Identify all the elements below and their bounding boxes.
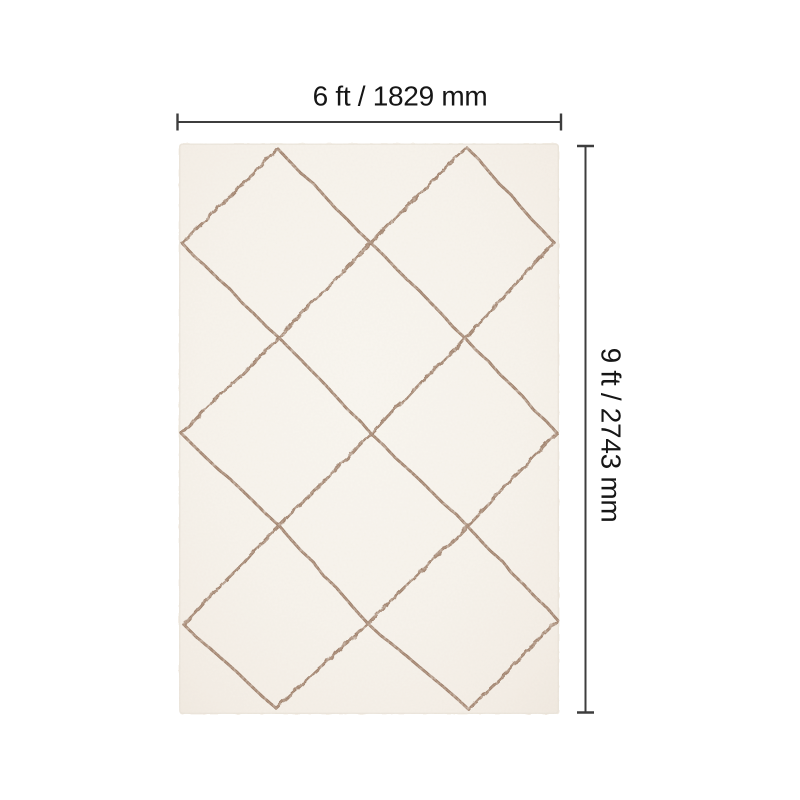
svg-text:6 ft / 1829 mm: 6 ft / 1829 mm [313, 81, 488, 112]
svg-text:9 ft / 2743 mm: 9 ft / 2743 mm [596, 348, 627, 523]
